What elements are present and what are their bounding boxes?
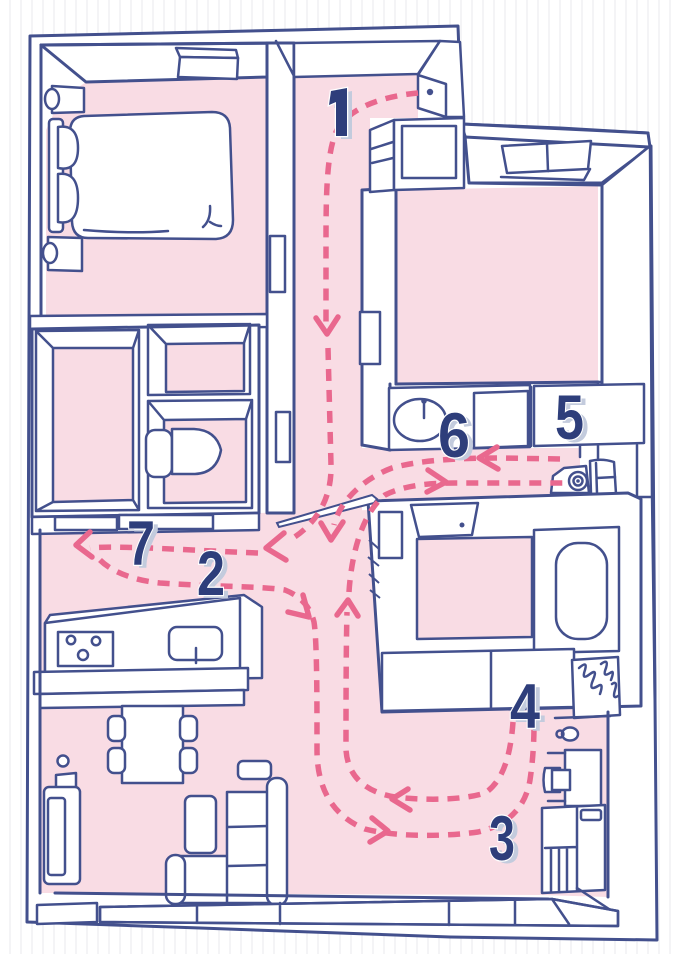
svg-text:7: 7 (127, 509, 155, 579)
svg-text:3: 3 (489, 804, 515, 874)
svg-text:4: 4 (510, 672, 540, 742)
svg-text:2: 2 (197, 539, 225, 609)
svg-text:5: 5 (555, 383, 584, 453)
svg-text:6: 6 (438, 401, 470, 471)
